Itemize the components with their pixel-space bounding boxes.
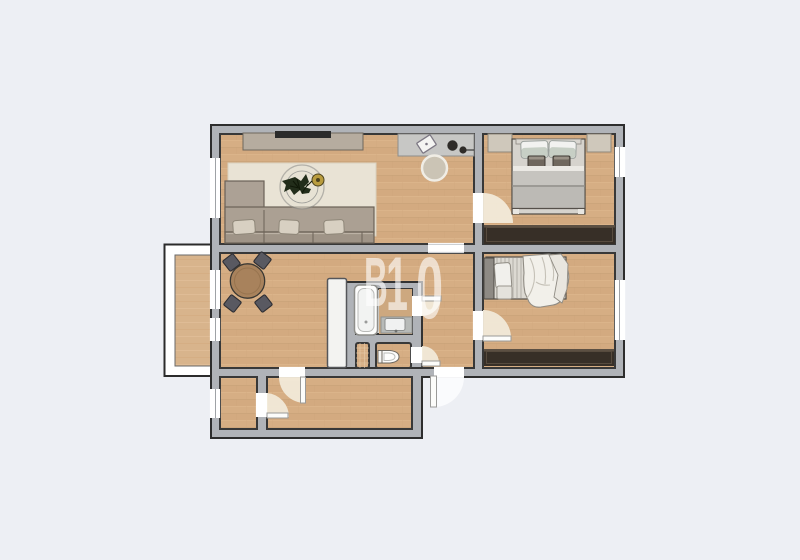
svg-text:B: B [364, 242, 388, 321]
svg-text:1: 1 [386, 241, 408, 326]
svg-text:0: 0 [416, 239, 443, 336]
